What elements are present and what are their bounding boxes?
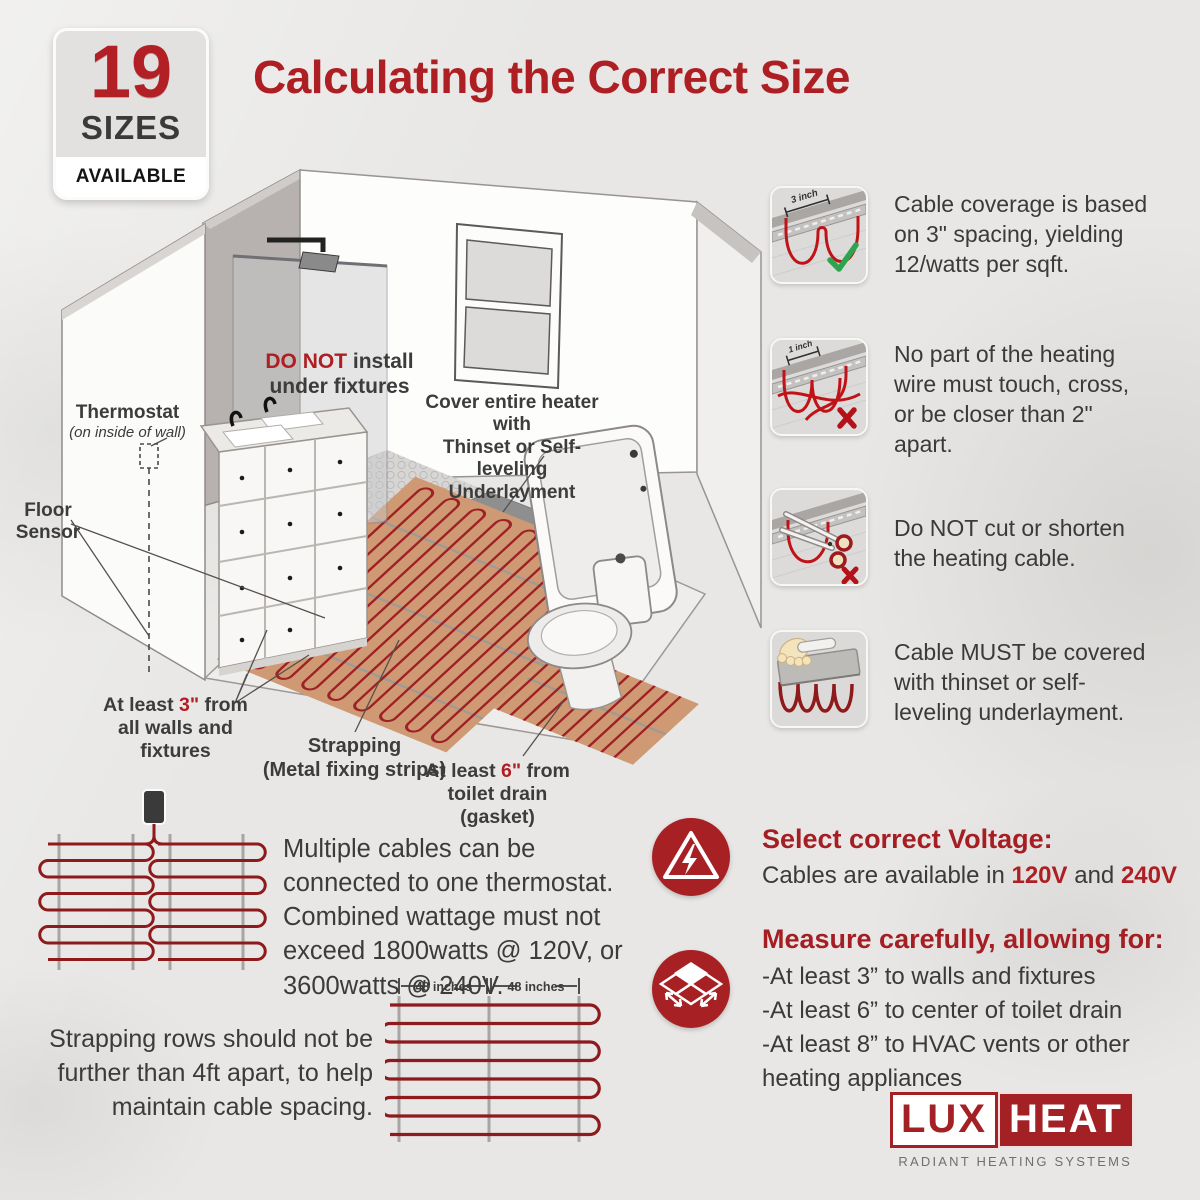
sizes-count: 19: [56, 37, 206, 107]
logo-wordmark: LUX HEAT: [890, 1092, 1132, 1148]
sizes-badge-top: 19 SIZES: [56, 31, 206, 157]
multi-cable-diagram: [35, 782, 290, 1012]
trowel-thumb: [770, 630, 868, 728]
rule-text: Cable coverage is based on 3" spacing, y…: [894, 186, 1156, 284]
luxheat-logo: LUX HEAT RADIANT HEATING SYSTEMS: [890, 1092, 1132, 1169]
cable-spacing-icon: 3 inch: [772, 188, 866, 282]
logo-heat: HEAT: [998, 1092, 1134, 1148]
measure-item: -At least 8” to HVAC vents or other heat…: [762, 1028, 1194, 1096]
window: [455, 224, 562, 388]
strap-spacing-diagram: 48 inches 48 inches: [385, 972, 640, 1147]
rule-text: Do NOT cut or shorten the heating cable.: [894, 488, 1156, 586]
strapping-lines: [399, 996, 579, 1142]
measure-item: -At least 6” to center of toilet drain: [762, 994, 1194, 1028]
infographic-canvas: 19 SIZES AVAILABLE Calculating the Corre…: [0, 0, 1200, 1200]
thermostat-wall: [62, 224, 205, 680]
strapping-note: Strapping rows should not be further tha…: [35, 1022, 373, 1124]
rule-text: Cable MUST be covered with thinset or se…: [894, 630, 1156, 728]
rule-no-cutting: Do NOT cut or shorten the heating cable.: [770, 488, 1200, 586]
vanity: [201, 398, 367, 676]
sizes-word: SIZES: [56, 109, 206, 147]
heating-cable: [40, 844, 154, 960]
trowel-icon: [772, 632, 866, 726]
floor-sensor-label: Floor Sensor: [8, 500, 88, 545]
min-6in-label: At least 6" from toilet drain (gasket): [410, 760, 585, 829]
scissors-cable-icon: [772, 490, 866, 584]
rule-text: No part of the heating wire must touch, …: [894, 338, 1156, 460]
voltage-title: Select correct Voltage:: [762, 824, 1053, 855]
rule-no-touch-cross: 1 inch No part of the heating wire must …: [770, 338, 1200, 460]
heating-cable: [150, 844, 266, 960]
measure-tile-icon: [652, 950, 730, 1028]
voltage-line: Cables are available in 120V and 240V: [762, 862, 1192, 890]
voltage-warning-icon: [652, 818, 730, 896]
rule-cable-coverage: 3 inch Cable coverage is based on 3" spa…: [770, 186, 1200, 284]
cable-crossing-icon: 1 inch: [772, 340, 866, 434]
cable-crossing-thumb: 1 inch: [770, 338, 868, 436]
dim-label: 48 inches: [416, 980, 473, 994]
thermostat-sublabel: (on inside of wall): [60, 424, 195, 442]
heating-cable: [385, 1005, 599, 1135]
measure-items: -At least 3” to walls and fixtures -At l…: [762, 960, 1194, 1096]
logo-lux: LUX: [890, 1092, 998, 1148]
measure-title: Measure carefully, allowing for:: [762, 924, 1164, 955]
do-not-install-label: DO NOT install under fixtures: [252, 350, 427, 400]
cable-cut-thumb: [770, 488, 868, 586]
min-3in-label: At least 3" from all walls and fixtures: [88, 694, 263, 763]
page-title: Calculating the Correct Size: [253, 50, 953, 104]
cover-heater-label: Cover entire heater with Thinset or Self…: [412, 392, 612, 504]
rule-cover-cable: Cable MUST be covered with thinset or se…: [770, 630, 1200, 728]
cable-spacing-thumb: 3 inch: [770, 186, 868, 284]
thermostat-box: [143, 790, 165, 824]
logo-tagline: RADIANT HEATING SYSTEMS: [890, 1154, 1132, 1169]
measure-item: -At least 3” to walls and fixtures: [762, 960, 1194, 994]
dim-label: 48 inches: [508, 980, 565, 994]
thermostat-label: Thermostat (on inside of wall): [60, 402, 195, 442]
